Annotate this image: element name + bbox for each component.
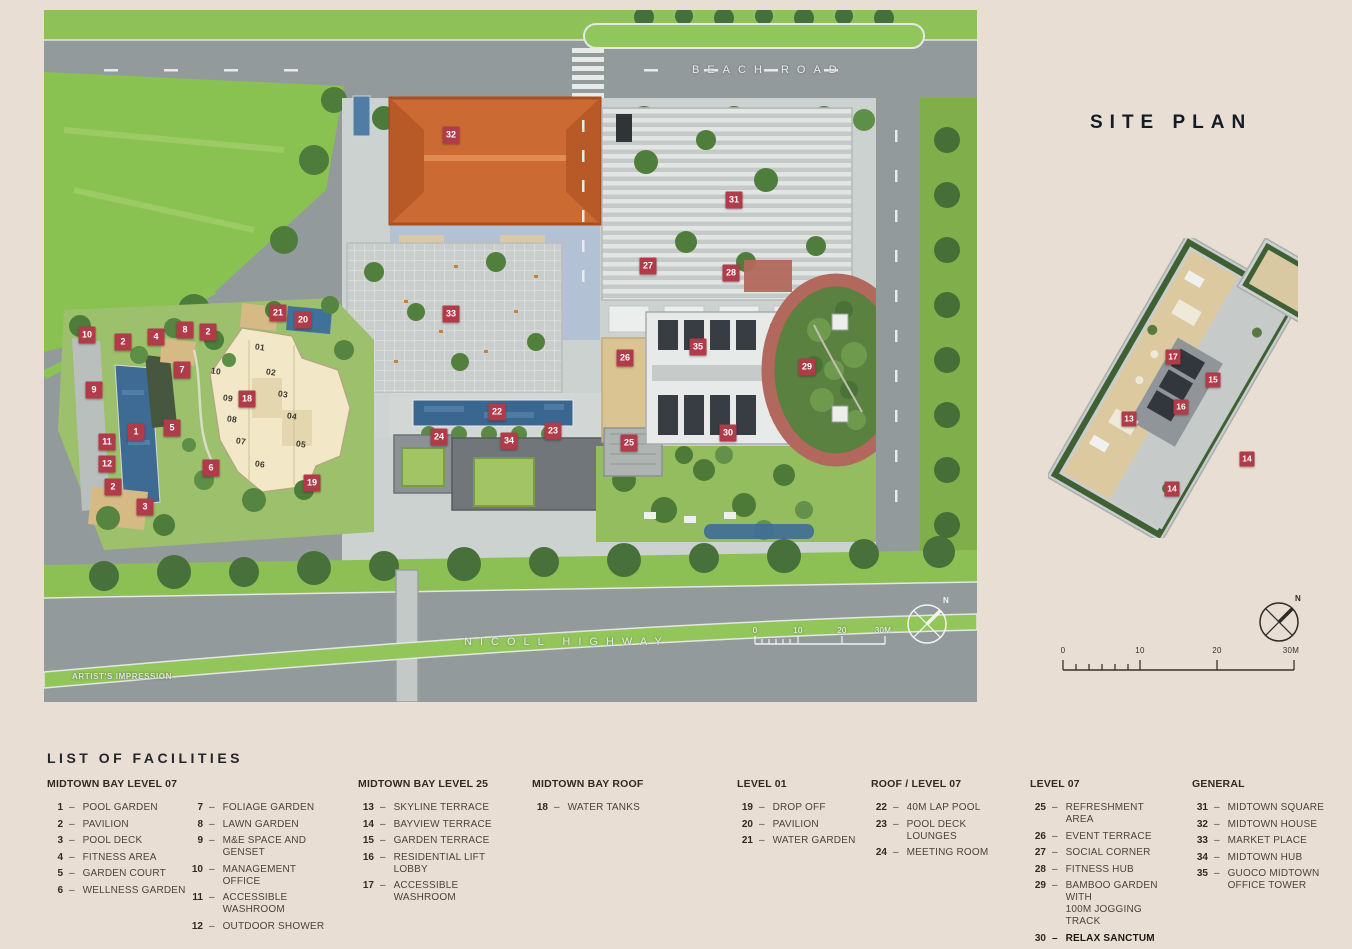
page-title: SITE PLAN xyxy=(1090,112,1252,134)
site-plan-map: BEACH ROAD NICOLL HIGHWAY ARTIST'S IMPRE… xyxy=(44,10,977,702)
facilities-group-heading: GENERAL xyxy=(1192,778,1332,790)
facility-item: 35–GUOCO MIDTOWN OFFICE TOWER xyxy=(1192,868,1332,892)
inset-marker: 14 xyxy=(1240,452,1255,467)
scale-tick: 10 xyxy=(1135,646,1145,655)
facility-item: 17–ACCESSIBLE WASHROOM xyxy=(358,880,498,904)
facilities-list-title: LIST OF FACILITIES xyxy=(47,750,243,766)
panel-scale-bar: 0 10 20 30M xyxy=(1058,646,1298,674)
facility-item: 25–REFRESHMENT AREA xyxy=(1030,802,1170,826)
scale-tick: 0 xyxy=(1061,646,1066,655)
scale-tick: 30M xyxy=(1283,646,1299,655)
inset-markers-layer: 171516131414 xyxy=(1048,238,1298,538)
site-plan-page: { "page": {"background":"#e8ded3","accen… xyxy=(0,0,1352,909)
level-25-inset-plan: 171516131414 xyxy=(1048,238,1298,538)
facility-item: 15–GARDEN TERRACE xyxy=(358,835,498,847)
facility-item: 13–SKYLINE TERRACE xyxy=(358,802,498,814)
facilities-group-heading: LEVEL 01 xyxy=(737,778,877,790)
inset-marker: 17 xyxy=(1166,350,1181,365)
panel-compass: N xyxy=(1255,598,1303,646)
facility-item: 21–WATER GARDEN xyxy=(737,835,877,847)
compass-north-label: N xyxy=(1295,594,1301,603)
facility-item: 20–PAVILION xyxy=(737,819,877,831)
facility-item: 12–OUTDOOR SHOWER xyxy=(187,921,327,933)
facility-item: 3–POOL DECK xyxy=(47,835,187,847)
facility-item: 4–FITNESS AREA xyxy=(47,852,187,864)
facilities-group-general: GENERAL31–MIDTOWN SQUARE32–MIDTOWN HOUSE… xyxy=(1192,778,1332,897)
facility-item: 31–MIDTOWN SQUARE xyxy=(1192,802,1332,814)
facilities-group-heading: MIDTOWN BAY LEVEL 07 xyxy=(47,778,327,790)
facilities-group-heading: LEVEL 07 xyxy=(1030,778,1170,790)
facilities-group-roof-level-07: ROOF / LEVEL 0722–40M LAP POOL23–POOL DE… xyxy=(871,778,1011,864)
facility-item: 30–RELAX SANCTUM xyxy=(1030,933,1170,945)
facility-item: 34–MIDTOWN HUB xyxy=(1192,852,1332,864)
facilities-group-heading: ROOF / LEVEL 07 xyxy=(871,778,1011,790)
facilities-group-midtown-bay-roof: MIDTOWN BAY ROOF18–WATER TANKS xyxy=(532,778,672,819)
facility-item: 22–40M LAP POOL xyxy=(871,802,1011,814)
facility-item: 14–BAYVIEW TERRACE xyxy=(358,819,498,831)
site-plan-illustration xyxy=(44,10,977,702)
facilities-group-level-07: LEVEL 0725–REFRESHMENT AREA26–EVENT TERR… xyxy=(1030,778,1170,949)
facility-item: 10–MANAGEMENT OFFICE xyxy=(187,864,327,888)
facilities-group-heading: MIDTOWN BAY ROOF xyxy=(532,778,672,790)
facility-item: 32–MIDTOWN HOUSE xyxy=(1192,819,1332,831)
scale-ruler xyxy=(1058,646,1298,674)
inset-marker: 13 xyxy=(1122,412,1137,427)
facility-item: 19–DROP OFF xyxy=(737,802,877,814)
facility-item: 1–POOL GARDEN xyxy=(47,802,187,814)
inset-marker: 14 xyxy=(1165,482,1180,497)
facility-item: 33–MARKET PLACE xyxy=(1192,835,1332,847)
facility-item: 11–ACCESSIBLE WASHROOM xyxy=(187,892,327,916)
facility-item: 5–GARDEN COURT xyxy=(47,868,187,880)
facility-item: 23–POOL DECK LOUNGES xyxy=(871,819,1011,843)
scale-tick: 20 xyxy=(1212,646,1222,655)
facility-item: 18–WATER TANKS xyxy=(532,802,672,814)
inset-marker: 15 xyxy=(1206,373,1221,388)
compass-rose-icon xyxy=(1255,598,1303,646)
facility-item: 2–PAVILION xyxy=(47,819,187,831)
facilities-group-midtown-bay-level-25: MIDTOWN BAY LEVEL 2513–SKYLINE TERRACE14… xyxy=(358,778,498,909)
facility-item: 28–FITNESS HUB xyxy=(1030,864,1170,876)
inset-marker: 16 xyxy=(1174,400,1189,415)
facilities-group-level-01: LEVEL 0119–DROP OFF20–PAVILION21–WATER G… xyxy=(737,778,877,852)
facilities-group-heading: MIDTOWN BAY LEVEL 25 xyxy=(358,778,498,790)
facilities-group-midtown-bay-level-07: MIDTOWN BAY LEVEL 071–POOL GARDEN2–PAVIL… xyxy=(47,778,327,937)
facility-item: 29–BAMBOO GARDEN WITH 100M JOGGING TRACK xyxy=(1030,880,1170,928)
facility-item: 7–FOLIAGE GARDEN xyxy=(187,802,327,814)
facility-item: 24–MEETING ROOM xyxy=(871,847,1011,859)
facility-item: 27–SOCIAL CORNER xyxy=(1030,847,1170,859)
facility-item: 16–RESIDENTIAL LIFT LOBBY xyxy=(358,852,498,876)
facility-item: 26–EVENT TERRACE xyxy=(1030,831,1170,843)
facility-item: 6–WELLNESS GARDEN xyxy=(47,885,187,897)
facility-item: 8–LAWN GARDEN xyxy=(187,819,327,831)
facility-item: 9–M&E SPACE AND GENSET xyxy=(187,835,327,859)
